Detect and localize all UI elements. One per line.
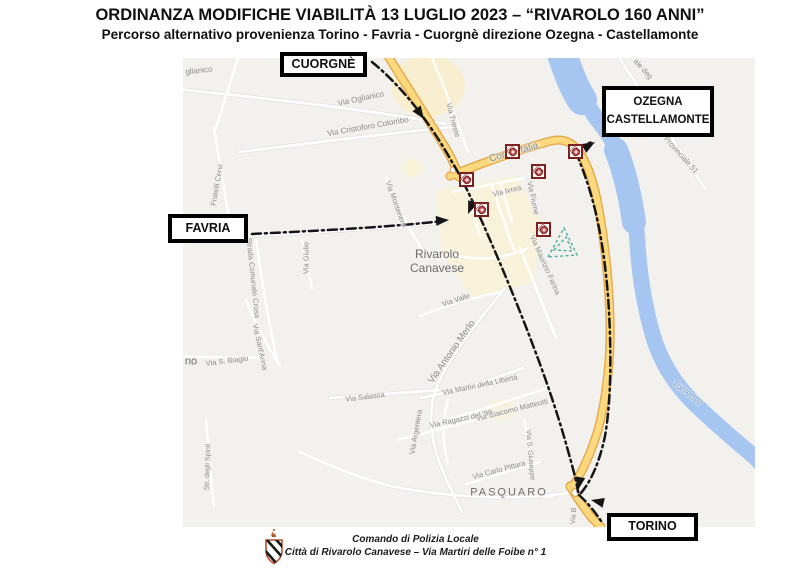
- street-label: Via S. Biagio: [205, 355, 248, 368]
- street-label: Via Montenero: [384, 180, 408, 228]
- road-closure-marker-icon: [505, 144, 520, 159]
- street-label: Via Cristoforo Colombo: [327, 116, 410, 138]
- street-label: Via Carlo Pittara: [472, 459, 527, 480]
- ordinance-page: ORDINANZA MODIFICHE VIABILITÀ 13 LUGLIO …: [0, 0, 800, 575]
- road-closure-marker-icon: [459, 172, 474, 187]
- street-label: Via Sant'Anna: [251, 323, 268, 371]
- town-label: Rivarolo Canavese: [410, 248, 464, 276]
- town-label: PASQUARO: [470, 487, 548, 500]
- street-label: Via Valle: [441, 292, 471, 308]
- town-label: no: [185, 356, 197, 369]
- street-label: Via Antonio Merlo: [427, 319, 477, 385]
- road-closure-marker-icon: [568, 144, 583, 159]
- destination-label: CASTELLAMONTE: [607, 112, 710, 130]
- street-label: Provinciale 51: [662, 135, 699, 175]
- street-label: Via Ivrea: [492, 184, 522, 198]
- closure-marker-dot: [509, 148, 517, 156]
- road-closure-marker-icon: [536, 222, 551, 237]
- page-subtitle: Percorso alternativo provenienza Torino …: [0, 27, 800, 42]
- footer-line1: Comando di Polizia Locale: [283, 533, 548, 546]
- street-label: Fratelli Cervi: [210, 164, 225, 207]
- closure-marker-dot: [535, 168, 543, 176]
- closure-marker-dot: [478, 206, 486, 214]
- street-label: Via Oglianico: [337, 90, 385, 108]
- street-label: Torrente: [670, 379, 704, 407]
- destination-label: FAVRIA: [186, 219, 231, 238]
- street-label: Via Giulio: [302, 242, 310, 274]
- street-label: Via Maurizio Farina: [528, 234, 561, 296]
- street-label: Via S. Giuseppe: [524, 430, 535, 481]
- closure-marker-dot: [572, 148, 580, 156]
- destination-box-cuorgne: CUORGNÈ: [280, 52, 367, 77]
- closure-marker-dot: [463, 176, 471, 184]
- street-label: glianico: [185, 66, 213, 77]
- footer-authority: Comando di Polizia Locale Città di Rivar…: [283, 533, 548, 559]
- street-label: Via Martiri della Libertà: [442, 373, 518, 396]
- destination-label: TORINO: [628, 517, 676, 536]
- road-closure-marker-icon: [531, 164, 546, 179]
- closure-marker-dot: [540, 226, 548, 234]
- street-label: Str. degli Spinti: [204, 444, 213, 491]
- road-closure-marker-icon: [474, 202, 489, 217]
- destination-box-favria: FAVRIA: [168, 214, 248, 243]
- footer-line2: Città di Rivarolo Canavese – Via Martiri…: [283, 546, 548, 559]
- destination-label: OZEGNA: [633, 94, 682, 112]
- destination-label: CUORGNÈ: [292, 55, 356, 74]
- street-label: Via Trieste: [445, 102, 461, 138]
- page-title: ORDINANZA MODIFICHE VIABILITÀ 13 LUGLIO …: [0, 6, 800, 25]
- destination-box-torino: TORINO: [607, 513, 698, 541]
- street-label: Via Fiume: [526, 181, 540, 215]
- street-label: Via Salassa: [345, 391, 385, 403]
- street-label: ale deg: [632, 58, 654, 81]
- destination-box-ozegna-castellamonte: OZEGNA CASTELLAMONTE: [602, 86, 714, 137]
- street-label: Via B: [570, 507, 578, 524]
- street-label: Strada Comunale Crosa: [245, 238, 261, 319]
- street-label: Via Argentera: [408, 409, 423, 455]
